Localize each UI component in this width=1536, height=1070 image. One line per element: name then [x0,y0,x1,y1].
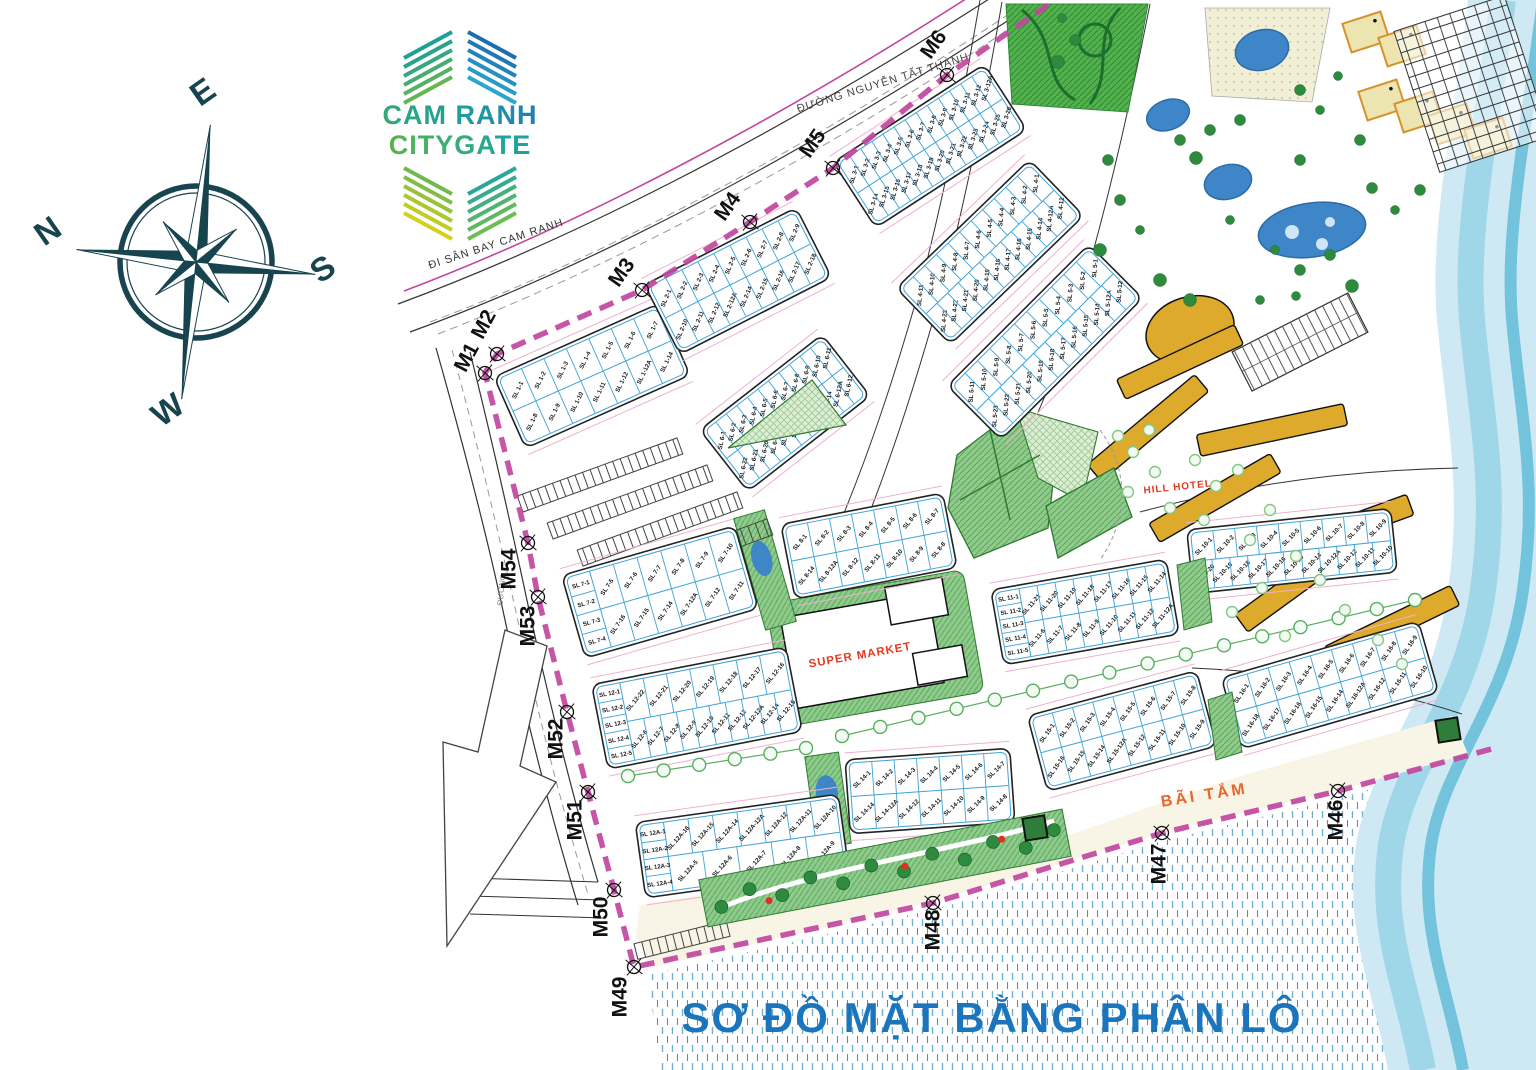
central-park [948,408,1132,560]
marker-label: M52 [544,719,567,760]
compass-w: W [144,385,191,434]
marker-label: M2 [467,306,501,343]
marker-label: M49 [608,977,631,1018]
compass-n: N [27,209,68,253]
resort-pool-mid [1200,159,1255,204]
site-plan-canvas: ĐI SÂN BAY CAM RANH ĐƯỜNG NGUYỄN TẤT THÀ… [0,0,1536,1070]
beach-kiosk-a [1022,815,1047,840]
beach-kiosk-b [1435,717,1460,742]
compass-rose: N E S W [27,70,342,434]
marker-label: M48 [921,909,944,950]
boundary-marker-m49: M49 [608,952,649,1018]
plot-block-sl-11: SL 11-1SL 11-2SL 11-3SL 11-4SL 11-5SL 11… [990,552,1182,672]
logo-line1: CAM RANH [383,100,538,130]
master-plan-map: ĐI SÂN BAY CAM RANH ĐƯỜNG NGUYỄN TẤT THÀ… [0,0,1536,1070]
compass-e: E [183,70,222,113]
boundary-marker-m5: M5 [795,125,849,184]
parking-lot [1232,293,1368,391]
compass-star [62,112,330,412]
resort-lagoon [1255,196,1369,265]
marker-label: M54 [497,548,520,589]
marker-label: M51 [563,799,586,840]
plot-block-sl-7: SL 7-1SL 7-2SL 7-3SL 7-4SL 7-5SL 7-6SL 7… [560,519,761,665]
project-logo: CAM RANH CITYGATE [383,32,538,239]
marker-label: M53 [516,606,539,647]
plot-block-sl-2: SL 2-1SL 2-2SL 2-3SL 2-4SL 2-5SL 2-6SL 2… [641,201,834,360]
marker-label: M47 [1147,844,1170,885]
plot-block-sl-15: SL 15-1SL 15-2SL 15-3SL 15-4SL 15-5SL 15… [1026,664,1219,798]
logo-line2: CITYGATE [389,130,532,160]
marker-label: M4 [710,188,746,225]
page-title: SƠ ĐỒ MẶT BẰNG PHÂN LÔ [681,993,1302,1041]
marker-label: M5 [795,125,831,162]
exit-arrow [443,630,556,946]
compass-s: S [303,247,342,290]
boundary-marker-m1: M1 [450,339,501,389]
resort-pool-small [1142,93,1194,136]
boundary-marker-m51: M51 [563,777,603,841]
marker-label: M46 [1324,800,1347,841]
marker-label: M50 [589,897,612,938]
